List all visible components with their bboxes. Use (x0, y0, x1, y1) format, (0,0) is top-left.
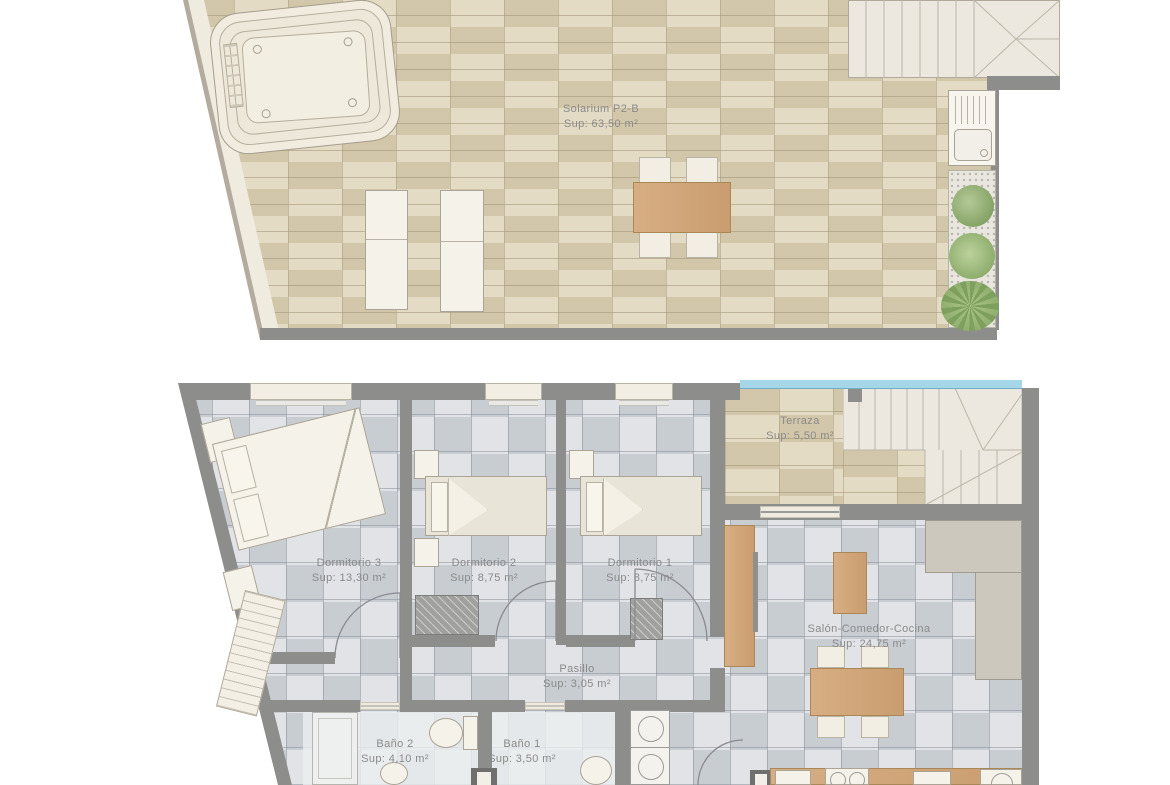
sink-faucet (980, 149, 988, 157)
sun-lounger (365, 190, 408, 310)
door-swing-arcs (175, 380, 1047, 785)
room-label-solarium: Solarium P2-B Sup: 63,50 m² (516, 102, 686, 132)
solarium-chair (639, 157, 671, 184)
solarium-area: Sup: 63,50 m² (516, 117, 686, 132)
solarium-plan: Solarium P2-B Sup: 63,50 m² (180, 0, 1060, 340)
solarium-chair (686, 157, 718, 184)
bush-plant (949, 233, 995, 279)
solarium-name: Solarium P2-B (516, 102, 686, 117)
dorm1-door-arc (635, 569, 707, 641)
entry-door-arc (698, 740, 743, 785)
sink-drainer-lines (955, 96, 989, 124)
dorm2-door-arc (496, 581, 556, 641)
floorplan-canvas: Solarium P2-B Sup: 63,50 m² (0, 0, 1170, 785)
lounger-fold-line (366, 239, 407, 240)
outdoor-sink-unit (948, 90, 996, 166)
solarium-bottom-wall (260, 328, 997, 340)
solarium-chair (639, 231, 671, 258)
bush-plant (952, 185, 994, 227)
lounger-fold-line (441, 241, 483, 242)
dorm3-door-arc (335, 593, 400, 658)
solarium-understair-wall (987, 76, 1060, 90)
solarium-stairs (848, 0, 1060, 78)
planter-strip (948, 170, 996, 328)
palm-plant (941, 281, 999, 331)
solarium-chair (686, 231, 718, 258)
apartment-plan: Dormitorio 3 Sup: 13,30 m² Dormitorio 2 … (175, 380, 1047, 785)
jacuzzi (207, 0, 403, 157)
sun-lounger (440, 190, 484, 312)
solarium-dining-table (633, 182, 731, 233)
